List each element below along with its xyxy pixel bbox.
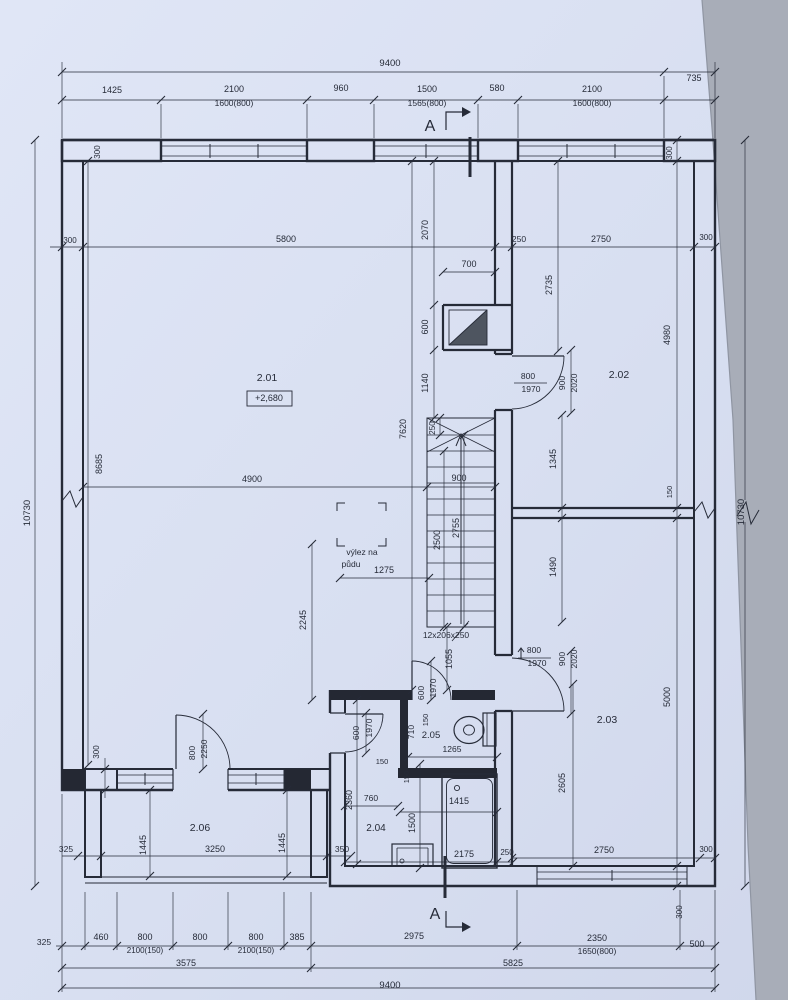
door-203-800: 800: [527, 645, 541, 655]
dim-1415: 1415: [449, 796, 469, 806]
dim-2360: 2360: [344, 790, 354, 810]
dim-2750-top: 2750: [591, 234, 611, 244]
door-lobby-1970: 1970: [364, 718, 374, 737]
dim-2605: 2605: [557, 773, 567, 793]
dim-top-overall: 9400: [379, 58, 400, 69]
dim-300-topright-h: 300: [699, 233, 713, 242]
dim-top-window2-size: 1565(800): [408, 98, 447, 108]
dim-1265: 1265: [443, 744, 462, 754]
dim-top-pier1: 960: [333, 83, 348, 93]
dim-top-window1: 2100: [224, 84, 244, 94]
dim-300-pillar-topright: 300: [665, 146, 674, 160]
stair-label: 12x206x250: [423, 630, 470, 640]
door-balcony-2250: 2250: [199, 739, 209, 758]
room-label-2-03: 2.03: [597, 714, 618, 726]
dim-2175: 2175: [454, 849, 474, 859]
attic-hatch-label-2: půdu: [342, 559, 361, 569]
dim-2750-bottom: 2750: [594, 845, 614, 855]
dim-bottom-2975: 2975: [404, 931, 424, 941]
room-label-2-05: 2.05: [422, 730, 441, 741]
dim-bottom-w1: 800: [137, 932, 152, 942]
door-wc-600: 600: [416, 686, 426, 700]
dim-760: 760: [364, 793, 378, 803]
dim-top-window3-size: 1600(800): [573, 98, 612, 108]
dim-4980: 4980: [662, 325, 672, 345]
dim-2500: 2500: [432, 530, 442, 550]
door-202-2020: 2020: [569, 373, 579, 392]
room-label-2-04: 2.04: [366, 823, 386, 834]
dim-700: 700: [461, 259, 476, 269]
dim-150-c: 150: [402, 771, 411, 784]
dim-250-stair: 250: [428, 421, 437, 435]
room-label-2-06: 2.06: [190, 822, 211, 834]
dim-bottom-window-size: 1650(800): [578, 946, 617, 956]
dim-bottom-460: 460: [93, 932, 108, 942]
dim-1490: 1490: [548, 557, 558, 577]
dim-300-wall-left: 300: [63, 236, 77, 245]
dim-150-wall-right: 150: [665, 486, 674, 499]
dim-2070: 2070: [420, 220, 430, 240]
dim-room1-4900: 4900: [242, 474, 262, 484]
dim-2735: 2735: [544, 275, 554, 295]
dim-250-wall-top: 250: [512, 234, 526, 244]
dim-left-8685: 8685: [94, 454, 104, 474]
door-lobby-600: 600: [351, 726, 361, 740]
dim-top-window2: 1500: [417, 84, 437, 94]
section-marker-top: A: [425, 118, 436, 135]
dim-1275: 1275: [374, 565, 394, 575]
door-203-1970: 1970: [528, 658, 547, 668]
photographed-blueprint: 9400735142521001600(800)96015001565(800)…: [0, 0, 788, 1000]
dim-5000: 5000: [662, 687, 672, 707]
dim-bottom-overall: 9400: [379, 980, 400, 991]
dim-1345: 1345: [548, 449, 558, 469]
dim-room1-5800: 5800: [276, 234, 296, 244]
door-202-900: 900: [557, 376, 567, 390]
dim-right-overall: 10730: [736, 499, 747, 525]
dim-150-b: 150: [376, 757, 389, 766]
dim-bottom-w2: 800: [248, 932, 263, 942]
dim-710: 710: [406, 725, 416, 739]
dim-top-window3: 2100: [582, 84, 602, 94]
dim-bottom-2350: 2350: [587, 933, 607, 943]
dim-150-a: 150: [421, 714, 430, 727]
dim-left-overall: 10730: [22, 500, 33, 526]
door-202-800: 800: [521, 371, 535, 381]
dim-1140: 1140: [420, 373, 430, 392]
dim-top-735: 735: [686, 73, 701, 83]
dim-1055: 1055: [444, 649, 454, 669]
dim-bottom-5825: 5825: [503, 958, 523, 968]
door-balcony-800: 800: [187, 746, 197, 760]
dim-balcony-350: 350: [335, 844, 349, 854]
attic-hatch-label-1: výlez na: [346, 547, 377, 557]
door-202-1970: 1970: [522, 384, 541, 394]
dim-1500: 1500: [407, 813, 417, 833]
dim-balcony-3250: 3250: [205, 844, 225, 854]
dim-bottom-385: 385: [289, 932, 304, 942]
dim-300-bottomright-v: 300: [675, 905, 684, 919]
dim-900-stair: 900: [451, 473, 466, 483]
dim-balcony-1445-left: 1445: [138, 835, 148, 855]
dim-top-1425: 1425: [102, 85, 122, 95]
dim-bottom-500: 500: [689, 939, 704, 949]
dim-top-window1-size: 1600(800): [215, 98, 254, 108]
level-label: +2,680: [255, 393, 283, 403]
dim-balcony-325: 325: [59, 844, 73, 854]
dim-2755: 2755: [451, 518, 461, 538]
dim-300-wall-bottomleft: 300: [92, 745, 101, 759]
dim-2245: 2245: [298, 610, 308, 630]
dim-7620: 7620: [398, 419, 408, 439]
dim-bottom-325: 325: [37, 937, 51, 947]
floor-plan-drawing: 9400735142521001600(800)96015001565(800)…: [0, 0, 788, 1000]
room-label-2-02: 2.02: [609, 369, 630, 381]
dim-bottom-w2-size: 2100(150): [238, 946, 275, 955]
dim-bottom-3575: 3575: [176, 958, 196, 968]
door-203-2020: 2020: [569, 649, 579, 668]
dim-bottom-door: 800: [192, 932, 207, 942]
section-marker-bottom: A: [430, 906, 441, 923]
dim-250-wall-bottom: 250: [500, 848, 514, 857]
door-wc-1970: 1970: [428, 678, 438, 697]
dim-top-pier2: 580: [489, 83, 504, 93]
dim-300-bottomright-h: 300: [699, 845, 713, 854]
dim-600-chimney: 600: [420, 319, 430, 334]
room-label-2-01: 2.01: [257, 372, 278, 384]
dim-bottom-w1-size: 2100(150): [127, 946, 164, 955]
dim-300-pillar-topleft: 300: [93, 145, 102, 159]
door-203-900: 900: [557, 652, 567, 666]
dim-balcony-1445-right: 1445: [277, 833, 287, 853]
